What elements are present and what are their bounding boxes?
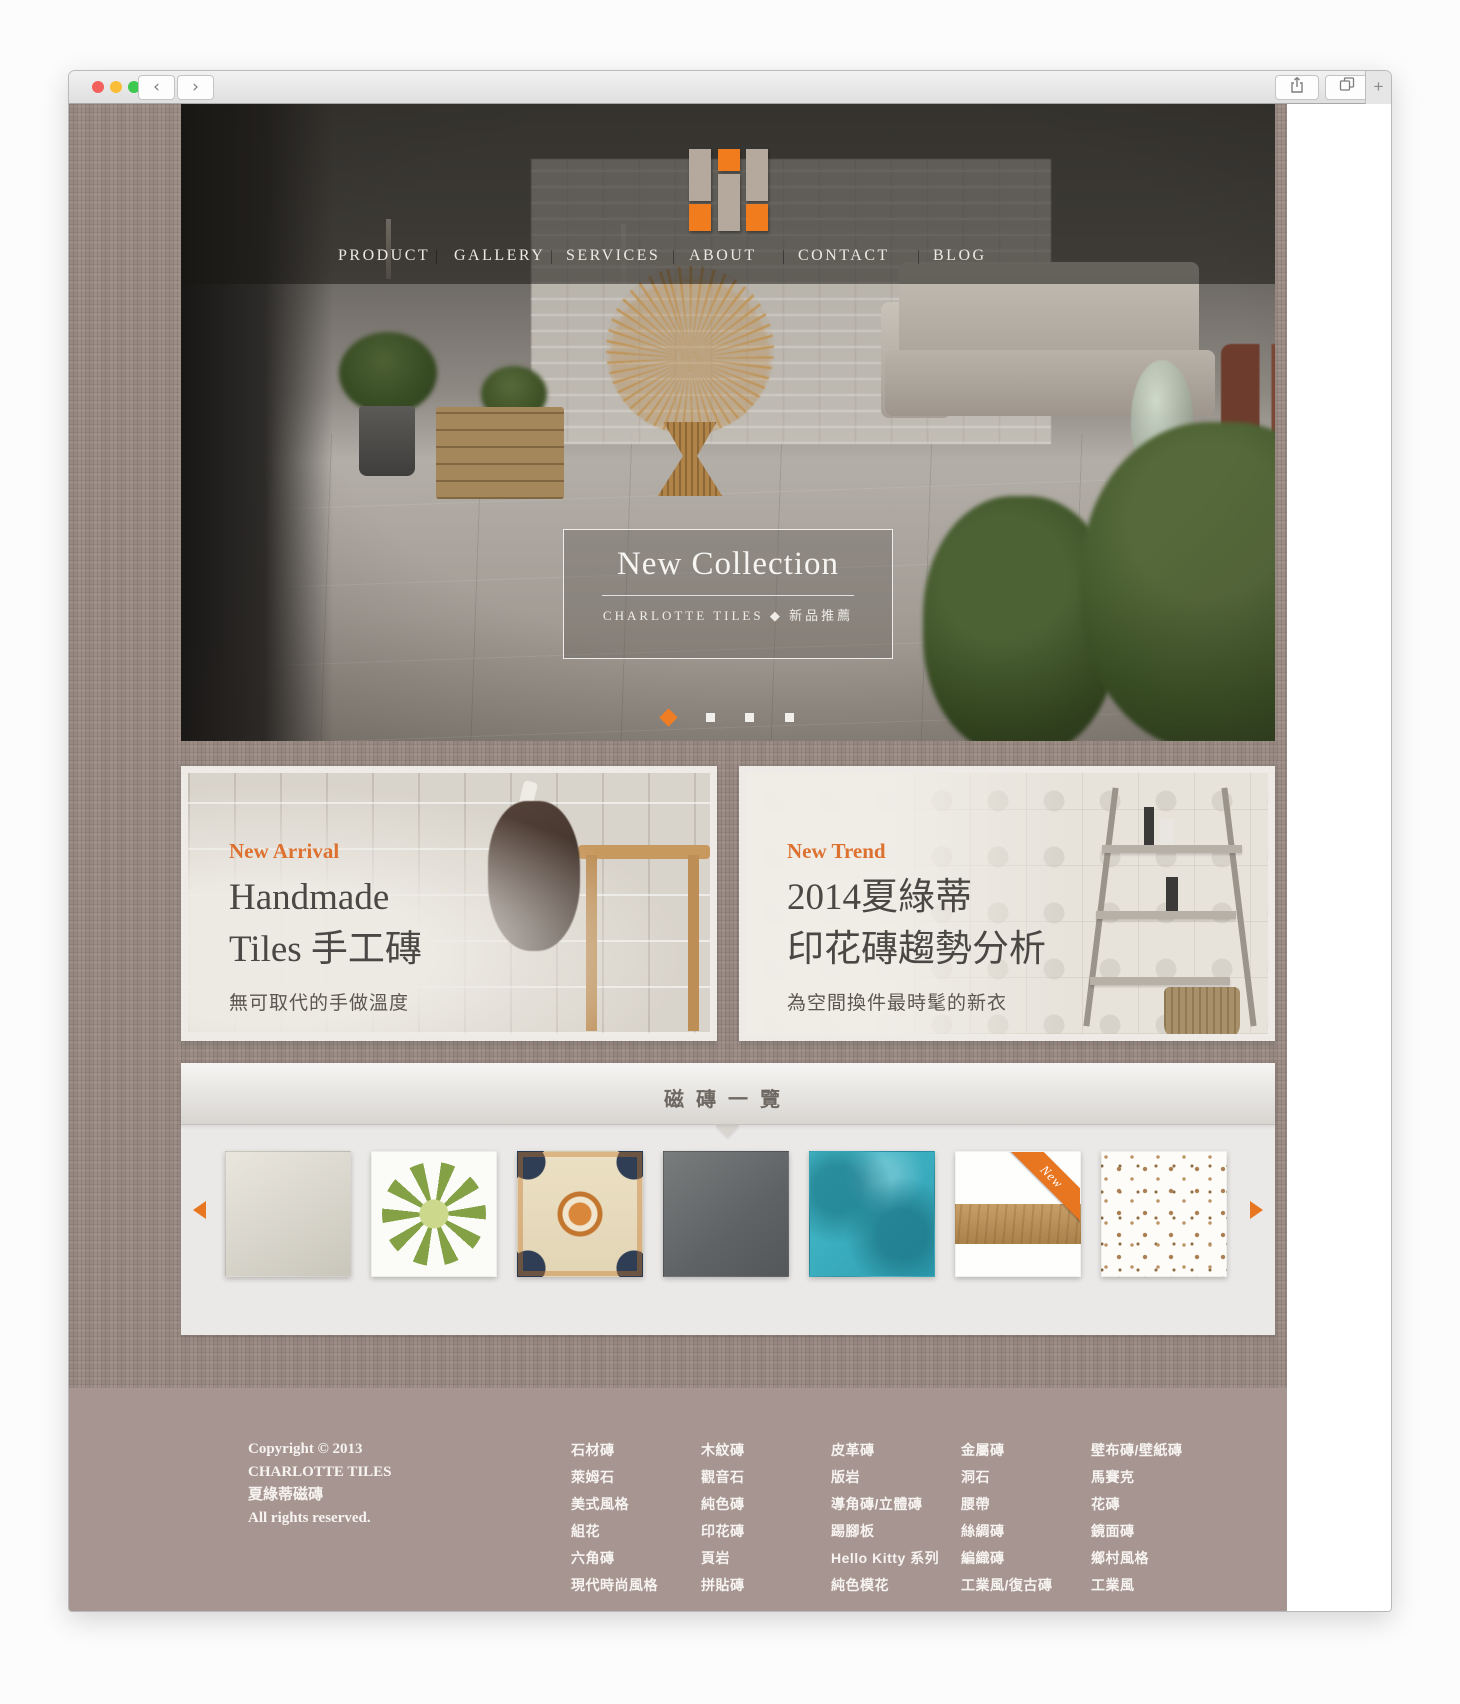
copyright-block: Copyright © 2013 CHARLOTTE TILES 夏綠蒂磁磚 A… bbox=[248, 1438, 392, 1530]
nav-separator bbox=[673, 250, 674, 264]
site-background-texture: PRODUCT GALLERY SERVICES ABOUT CONTACT B… bbox=[69, 104, 1287, 1612]
footer-column-3: 皮革磚 版岩 導角磚/立體磚 踢腳板 Hello Kitty 系列 純色模花 bbox=[831, 1440, 939, 1602]
share-button[interactable] bbox=[1275, 75, 1319, 100]
footer-link[interactable]: 拼貼磚 bbox=[701, 1577, 745, 1593]
charlotte-tiles-logo[interactable] bbox=[689, 149, 768, 231]
carousel-prev-arrow[interactable] bbox=[193, 1201, 206, 1219]
footer-link[interactable]: 工業風 bbox=[1091, 1577, 1135, 1593]
new-badge-ribbon: New bbox=[1000, 1151, 1081, 1228]
footer-link[interactable]: 觀音石 bbox=[701, 1469, 745, 1485]
footer-column-1: 石材磚 萊姆石 美式風格 組花 六角磚 現代時尚風格 bbox=[571, 1440, 658, 1602]
copyright-line: CHARLOTTE TILES bbox=[248, 1461, 392, 1484]
card-description: 為空間換件最時髦的新衣 bbox=[787, 988, 1117, 1015]
hero-banner-subtitle: CHARLOTTE TILES ◆ 新品推薦 bbox=[564, 605, 892, 624]
card-title: HandmadeTiles 手工磚 bbox=[229, 872, 559, 976]
dark-concrete-tile[interactable] bbox=[663, 1151, 789, 1277]
copyright-line: 夏綠蒂磁磚 bbox=[248, 1484, 392, 1507]
footer-link[interactable]: 組花 bbox=[571, 1523, 600, 1539]
ornate-moroccan-tile[interactable] bbox=[517, 1151, 643, 1277]
nav-item-gallery[interactable]: GALLERY bbox=[454, 247, 545, 265]
tabs-icon bbox=[1339, 79, 1355, 96]
green-flower-tile[interactable] bbox=[371, 1151, 497, 1277]
flower-motif bbox=[382, 1162, 486, 1266]
promo-card-print-tile-trend[interactable]: New Trend 2014夏綠蒂印花磚趨勢分析 為空間換件最時髦的新衣 bbox=[739, 766, 1275, 1041]
nav-item-blog[interactable]: BLOG bbox=[933, 247, 987, 265]
slider-dot[interactable] bbox=[706, 713, 715, 722]
hero-header-band: PRODUCT GALLERY SERVICES ABOUT CONTACT B… bbox=[181, 104, 1275, 284]
footer-link[interactable]: 洞石 bbox=[961, 1469, 990, 1485]
footer-column-4: 金屬磚 洞石 腰帶 絲綢磚 編織磚 工業風/復古磚 bbox=[961, 1440, 1052, 1602]
nav-separator bbox=[551, 250, 552, 264]
copyright-line: Copyright © 2013 bbox=[248, 1438, 392, 1461]
nav-item-product[interactable]: PRODUCT bbox=[338, 247, 430, 265]
plain-cream-tile[interactable] bbox=[225, 1151, 351, 1277]
card-title: 2014夏綠蒂印花磚趨勢分析 bbox=[787, 872, 1117, 976]
close-window-button[interactable] bbox=[92, 81, 104, 93]
footer-link[interactable]: 腰帶 bbox=[961, 1496, 990, 1512]
footer-link[interactable]: 頁岩 bbox=[701, 1550, 730, 1566]
carousel-next-arrow[interactable] bbox=[1250, 1201, 1263, 1219]
card-tag: New Trend bbox=[787, 839, 1117, 864]
nav-separator bbox=[436, 250, 437, 264]
wood-plank-tile[interactable]: New bbox=[955, 1151, 1081, 1277]
new-tab-button[interactable]: + bbox=[1365, 71, 1391, 104]
slider-dots bbox=[181, 709, 1275, 727]
footer-link[interactable]: 版岩 bbox=[831, 1469, 860, 1485]
footer-link[interactable]: 鏡面磚 bbox=[1091, 1523, 1135, 1539]
nav-separator bbox=[918, 250, 919, 264]
card-text-block: New Trend 2014夏綠蒂印花磚趨勢分析 為空間換件最時髦的新衣 bbox=[787, 839, 1117, 1015]
tile-carousel-section: 磁磚一覽 New bbox=[181, 1063, 1275, 1335]
footer-link[interactable]: 印花磚 bbox=[701, 1523, 745, 1539]
hero-banner-title: New Collection bbox=[564, 546, 892, 583]
footer-link[interactable]: 導角磚/立體磚 bbox=[831, 1496, 922, 1512]
footer-column-5: 壁布磚/壁紙磚 馬賽克 花磚 鏡面磚 鄉村風格 工業風 bbox=[1091, 1440, 1182, 1602]
footer-link[interactable]: 木紋磚 bbox=[701, 1442, 745, 1458]
slider-dot-active[interactable] bbox=[660, 709, 678, 727]
footer-link[interactable]: 石材磚 bbox=[571, 1442, 615, 1458]
slider-dot[interactable] bbox=[745, 713, 754, 722]
promo-card-handmade-tiles[interactable]: New Arrival HandmadeTiles 手工磚 無可取代的手做溫度 bbox=[181, 766, 717, 1041]
hero-slider: PRODUCT GALLERY SERVICES ABOUT CONTACT B… bbox=[181, 104, 1275, 741]
nav-separator bbox=[783, 250, 784, 264]
minimize-window-button[interactable] bbox=[110, 81, 122, 93]
card-tag: New Arrival bbox=[229, 839, 559, 864]
browser-forward-button[interactable]: › bbox=[177, 75, 214, 100]
browser-back-button[interactable]: ‹ bbox=[138, 75, 175, 100]
hero-banner-divider bbox=[602, 595, 854, 596]
hero-banner: New Collection CHARLOTTE TILES ◆ 新品推薦 bbox=[563, 529, 893, 659]
carousel-header: 磁磚一覽 bbox=[181, 1063, 1275, 1125]
card-description: 無可取代的手做溫度 bbox=[229, 988, 559, 1015]
footer-column-2: 木紋磚 觀音石 純色磚 印花磚 頁岩 拼貼磚 bbox=[701, 1440, 745, 1602]
nav-item-contact[interactable]: CONTACT bbox=[798, 247, 890, 265]
footer-link[interactable]: 純色磚 bbox=[701, 1496, 745, 1512]
slider-dot[interactable] bbox=[785, 713, 794, 722]
footer-link[interactable]: 絲綢磚 bbox=[961, 1523, 1005, 1539]
footer-link[interactable]: Hello Kitty 系列 bbox=[831, 1550, 939, 1566]
footer-link[interactable]: 金屬磚 bbox=[961, 1442, 1005, 1458]
footer-link[interactable]: 現代時尚風格 bbox=[571, 1577, 658, 1593]
footer-link[interactable]: 壁布磚/壁紙磚 bbox=[1091, 1442, 1182, 1458]
browser-window: ‹ › + bbox=[68, 70, 1392, 1612]
footer-link[interactable]: 花磚 bbox=[1091, 1496, 1120, 1512]
share-icon bbox=[1289, 81, 1305, 98]
card-text-block: New Arrival HandmadeTiles 手工磚 無可取代的手做溫度 bbox=[229, 839, 559, 1015]
toile-pattern-tile[interactable] bbox=[1101, 1151, 1227, 1277]
nav-item-about[interactable]: ABOUT bbox=[689, 247, 757, 265]
footer-link[interactable]: 工業風/復古磚 bbox=[961, 1577, 1052, 1593]
show-tabs-button[interactable] bbox=[1325, 75, 1369, 100]
footer-link[interactable]: 編織磚 bbox=[961, 1550, 1005, 1566]
footer-link[interactable]: 純色模花 bbox=[831, 1577, 889, 1593]
footer-link[interactable]: 萊姆石 bbox=[571, 1469, 615, 1485]
footer-link[interactable]: 鄉村風格 bbox=[1091, 1550, 1149, 1566]
page-viewport: PRODUCT GALLERY SERVICES ABOUT CONTACT B… bbox=[69, 104, 1391, 1612]
footer-link[interactable]: 馬賽克 bbox=[1091, 1469, 1135, 1485]
browser-chrome-bar: ‹ › + bbox=[69, 71, 1391, 104]
nav-item-services[interactable]: SERVICES bbox=[566, 247, 660, 265]
carousel-title: 磁磚一覽 bbox=[664, 1083, 792, 1112]
site-footer: Copyright © 2013 CHARLOTTE TILES 夏綠蒂磁磚 A… bbox=[69, 1388, 1287, 1612]
footer-link[interactable]: 皮革磚 bbox=[831, 1442, 875, 1458]
footer-link[interactable]: 六角磚 bbox=[571, 1550, 615, 1566]
footer-link[interactable]: 美式風格 bbox=[571, 1496, 629, 1512]
copyright-line: All rights reserved. bbox=[248, 1507, 392, 1530]
turquoise-tile[interactable] bbox=[809, 1151, 935, 1277]
footer-link[interactable]: 踢腳板 bbox=[831, 1523, 875, 1539]
